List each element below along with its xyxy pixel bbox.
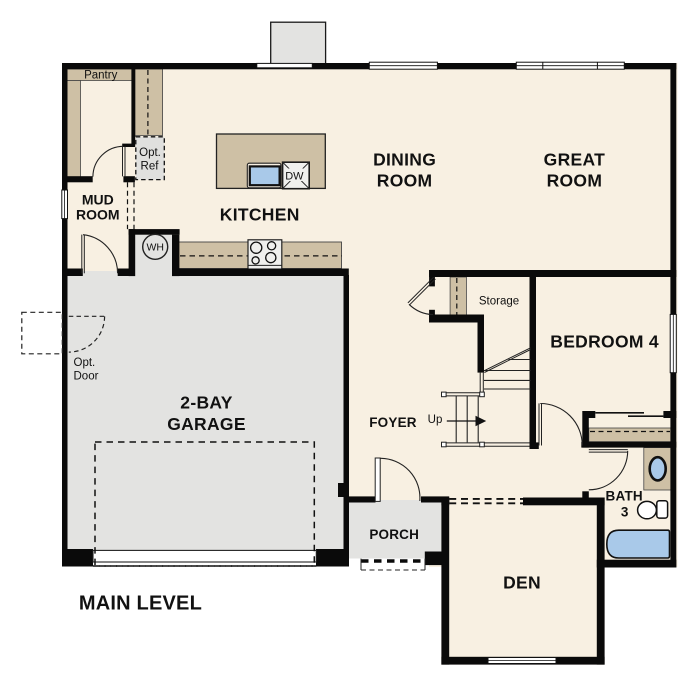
svg-text:MUD: MUD	[82, 192, 114, 208]
svg-text:ROOM: ROOM	[547, 171, 603, 191]
svg-text:Up: Up	[428, 414, 443, 426]
svg-text:Opt.: Opt.	[74, 357, 96, 369]
svg-text:2-BAY: 2-BAY	[180, 393, 232, 413]
svg-text:WH: WH	[146, 242, 164, 254]
svg-text:ROOM: ROOM	[377, 171, 433, 191]
svg-text:GREAT: GREAT	[544, 150, 605, 170]
svg-text:BATH: BATH	[606, 489, 643, 504]
svg-text:Storage: Storage	[479, 296, 519, 308]
svg-text:Ref: Ref	[141, 161, 160, 173]
svg-text:3: 3	[621, 505, 629, 520]
svg-text:DINING: DINING	[373, 150, 436, 170]
svg-text:PORCH: PORCH	[369, 527, 419, 542]
svg-text:KITCHEN: KITCHEN	[220, 204, 300, 224]
svg-text:MAIN LEVEL: MAIN LEVEL	[79, 593, 202, 615]
svg-text:Opt.: Opt.	[139, 147, 161, 159]
svg-text:ROOM: ROOM	[76, 207, 120, 223]
svg-text:GARAGE: GARAGE	[167, 414, 246, 434]
svg-text:BEDROOM 4: BEDROOM 4	[550, 332, 659, 352]
svg-text:DEN: DEN	[503, 573, 541, 593]
svg-text:DW: DW	[285, 170, 304, 182]
svg-text:Door: Door	[74, 370, 99, 382]
svg-text:Pantry: Pantry	[84, 70, 117, 82]
svg-text:FOYER: FOYER	[369, 415, 417, 430]
